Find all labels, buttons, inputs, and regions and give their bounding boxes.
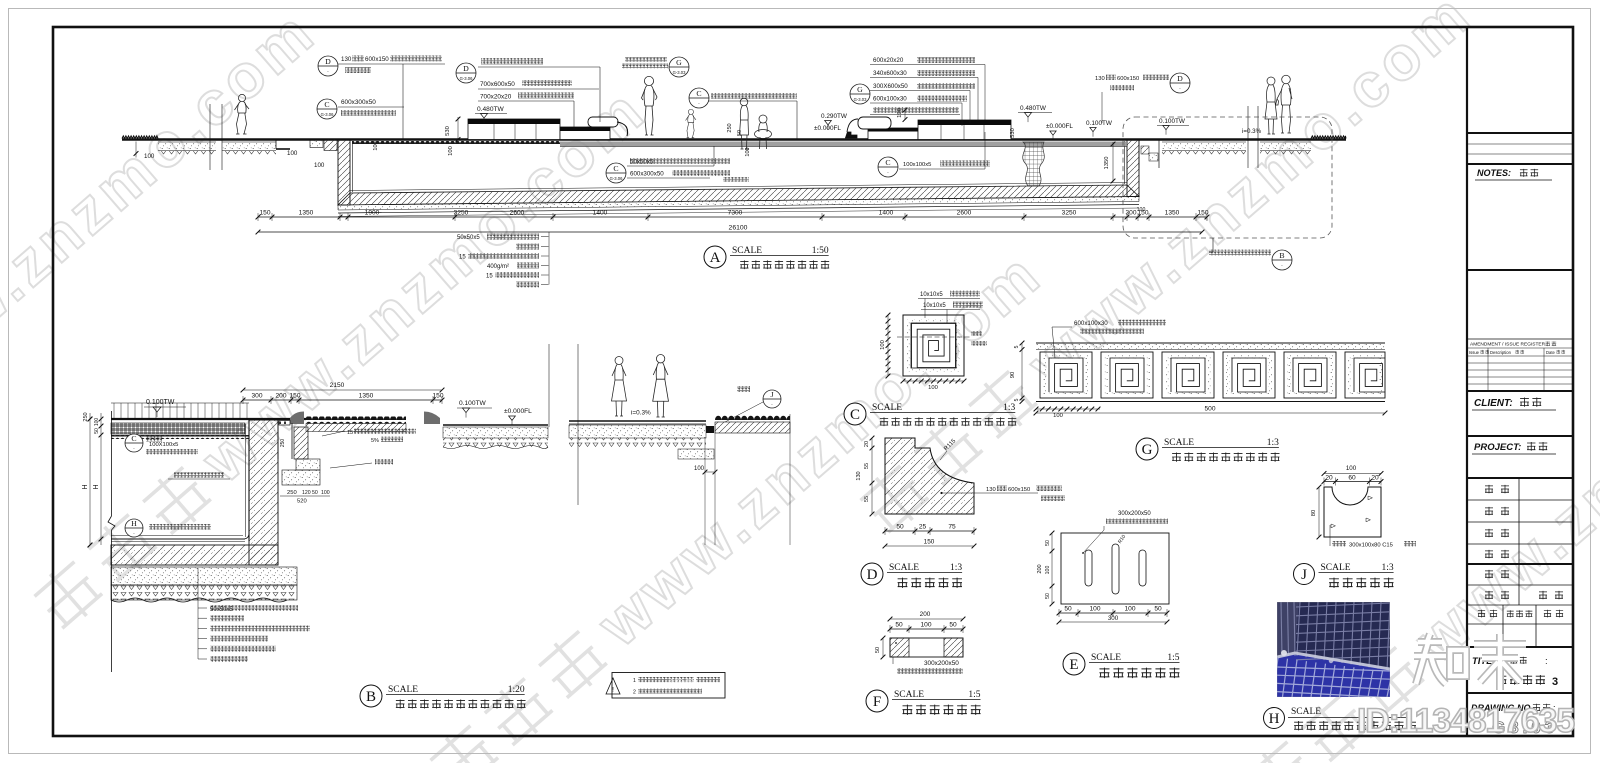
svg-text:100: 100 (1346, 465, 1357, 472)
svg-text:H: H (93, 484, 100, 489)
svg-text:50: 50 (896, 524, 904, 531)
svg-text:3250: 3250 (1062, 210, 1077, 217)
svg-text:15: 15 (486, 274, 493, 280)
svg-text:1:50: 1:50 (812, 246, 829, 256)
svg-text:100: 100 (920, 622, 931, 629)
svg-text:200: 200 (920, 611, 931, 618)
svg-text:0.100TW: 0.100TW (146, 399, 175, 406)
svg-text:H: H (1269, 711, 1280, 727)
svg-text:80: 80 (1311, 510, 1317, 516)
svg-text:1350: 1350 (1165, 210, 1180, 217)
svg-text:700x20x20: 700x20x20 (480, 94, 512, 101)
svg-text:C: C (131, 434, 136, 443)
svg-text:2150: 2150 (330, 382, 345, 389)
svg-text:200: 200 (1037, 564, 1043, 573)
svg-text:150: 150 (259, 210, 270, 217)
svg-text:ID:1134817635: ID:1134817635 (1357, 702, 1574, 740)
svg-text:C: C (613, 164, 618, 173)
svg-text:600x150: 600x150 (1008, 487, 1030, 493)
svg-text:130: 130 (1095, 76, 1105, 82)
svg-text:250: 250 (280, 439, 286, 448)
svg-text:250: 250 (83, 412, 89, 421)
svg-text:100: 100 (880, 340, 886, 350)
svg-text:300: 300 (1108, 615, 1119, 622)
svg-text:0.480TW: 0.480TW (1020, 105, 1047, 112)
svg-text:2600: 2600 (957, 210, 972, 217)
svg-text:Date: Date (1546, 350, 1556, 355)
svg-text:130: 130 (986, 487, 996, 493)
svg-text:±0.000FL: ±0.000FL (814, 125, 841, 132)
svg-text:3250: 3250 (454, 210, 469, 217)
svg-text:SCALE: SCALE (1091, 653, 1121, 663)
svg-text:250: 250 (727, 123, 733, 132)
svg-text:SCALE: SCALE (872, 403, 902, 413)
svg-text:600x100x30: 600x100x30 (1074, 320, 1108, 327)
svg-text:26100: 26100 (729, 225, 748, 232)
svg-text:600x300x50: 600x300x50 (341, 99, 376, 106)
svg-text:90: 90 (1010, 372, 1016, 378)
svg-text:0.100TW: 0.100TW (1086, 120, 1113, 127)
svg-text:100: 100 (314, 162, 325, 169)
svg-text:340x600x30: 340x600x30 (873, 70, 907, 77)
svg-text:1400: 1400 (879, 210, 894, 217)
svg-text:1:5: 1:5 (968, 690, 980, 700)
svg-text:1900: 1900 (365, 210, 380, 217)
svg-text:100: 100 (1045, 566, 1051, 575)
svg-text:1:3: 1:3 (1381, 563, 1393, 573)
svg-text:20: 20 (864, 441, 870, 447)
svg-text:0.480TW: 0.480TW (477, 106, 505, 113)
svg-text:1:3: 1:3 (950, 563, 962, 573)
svg-text:100: 100 (144, 153, 155, 160)
svg-text:1350: 1350 (359, 393, 374, 400)
svg-text:50x50x5: 50x50x5 (457, 235, 480, 241)
svg-text:C: C (696, 89, 701, 98)
svg-text:130: 130 (856, 471, 862, 480)
svg-text:700x600x50: 700x600x50 (480, 81, 515, 88)
svg-text:530: 530 (1010, 128, 1016, 138)
svg-text:D: D (463, 64, 469, 73)
svg-text:300x200x50: 300x200x50 (1118, 511, 1151, 517)
svg-text:100: 100 (94, 418, 100, 427)
svg-text:G-3.03: G-3.03 (673, 70, 686, 75)
svg-text:1350: 1350 (299, 210, 314, 217)
svg-text:1:3: 1:3 (1267, 438, 1279, 448)
svg-text:100: 100 (1053, 413, 1063, 419)
svg-text:3: 3 (1552, 676, 1558, 688)
svg-text:20: 20 (1325, 475, 1333, 482)
svg-text:1:20: 1:20 (508, 685, 525, 695)
svg-text:530: 530 (445, 126, 451, 136)
svg-text:G-3.06: G-3.06 (610, 176, 623, 181)
svg-text:2600: 2600 (510, 210, 525, 217)
svg-text:100: 100 (745, 147, 751, 156)
svg-text:25: 25 (919, 524, 927, 531)
svg-text::: : (1545, 656, 1548, 667)
svg-text:100: 100 (1124, 606, 1135, 613)
svg-text:5: 5 (1014, 398, 1020, 401)
svg-text:50: 50 (1064, 606, 1072, 613)
svg-text:5%: 5% (371, 438, 379, 444)
svg-text:400g/m²: 400g/m² (487, 264, 509, 270)
svg-text:B: B (366, 689, 376, 705)
svg-text:0.100TW: 0.100TW (1159, 118, 1186, 125)
svg-text:±0.000FL: ±0.000FL (504, 408, 532, 415)
svg-text:F: F (873, 694, 881, 710)
svg-text:G: G (857, 85, 863, 94)
svg-text:50x50x5: 50x50x5 (630, 159, 654, 166)
svg-text:G-3.06: G-3.06 (321, 112, 334, 117)
svg-text:50: 50 (949, 622, 957, 629)
svg-text:100: 100 (1137, 207, 1146, 213)
svg-text:600x100x30: 600x100x30 (873, 96, 907, 103)
svg-text:100: 100 (448, 146, 454, 156)
svg-text:CLIENT:: CLIENT: (1474, 398, 1513, 409)
svg-text:Issue: Issue (1469, 350, 1480, 355)
svg-text:J: J (770, 390, 773, 399)
svg-text:J: J (1301, 567, 1307, 583)
svg-text:1350: 1350 (1104, 157, 1110, 170)
svg-text:E: E (1069, 657, 1078, 673)
svg-text:300: 300 (1125, 210, 1136, 217)
svg-text:SCALE: SCALE (889, 563, 919, 573)
svg-text:1400: 1400 (593, 210, 608, 217)
svg-text:±0.000FL: ±0.000FL (1046, 123, 1073, 130)
svg-text:75: 75 (948, 524, 956, 531)
svg-text:10x10x5: 10x10x5 (920, 292, 943, 298)
svg-text:0.290TW: 0.290TW (821, 113, 848, 120)
svg-text:G-3.06: G-3.06 (460, 76, 473, 81)
svg-text:200: 200 (275, 393, 286, 400)
svg-text:300X600x50: 300X600x50 (873, 83, 908, 90)
svg-text:55: 55 (864, 496, 870, 502)
svg-text:H: H (82, 484, 89, 489)
svg-text:100: 100 (928, 385, 938, 391)
svg-text:150: 150 (1197, 210, 1208, 217)
svg-text:SCALE: SCALE (1291, 707, 1321, 717)
svg-text:SCALE: SCALE (1321, 563, 1351, 573)
svg-text:150: 150 (924, 539, 935, 546)
svg-text:Description: Description (1490, 350, 1512, 355)
svg-text:60: 60 (1348, 475, 1356, 482)
svg-text:500: 500 (1204, 406, 1215, 413)
svg-text:B: B (1279, 251, 1284, 260)
svg-text:SCALE: SCALE (1164, 438, 1194, 448)
svg-text:50: 50 (312, 490, 318, 496)
svg-text:1: 1 (633, 678, 636, 684)
svg-text:G-3.03: G-3.03 (854, 97, 867, 102)
svg-text:C: C (850, 407, 860, 423)
svg-text:0.100TW: 0.100TW (459, 400, 487, 407)
svg-text:SCALE: SCALE (894, 690, 924, 700)
svg-text:10x10x5: 10x10x5 (923, 303, 946, 309)
svg-text:300x100x80 C15: 300x100x80 C15 (1349, 543, 1393, 549)
svg-text:300: 300 (251, 393, 262, 400)
svg-text:D: D (1177, 74, 1183, 83)
svg-text:7300: 7300 (728, 210, 743, 217)
svg-text:100: 100 (694, 466, 705, 472)
svg-text:100: 100 (1089, 606, 1100, 613)
svg-text:50: 50 (1045, 593, 1051, 599)
svg-text:2: 2 (633, 690, 636, 696)
svg-text:D: D (325, 57, 331, 66)
svg-text:50: 50 (1154, 606, 1162, 613)
svg-text:5: 5 (1014, 345, 1020, 348)
svg-text:100X100x5: 100X100x5 (149, 442, 178, 448)
svg-text:SCALE: SCALE (388, 685, 418, 695)
svg-text:50: 50 (875, 647, 881, 653)
svg-text:600x150: 600x150 (365, 56, 389, 63)
svg-text:15: 15 (459, 255, 466, 261)
svg-text:50x50x5: 50x50x5 (210, 607, 233, 613)
svg-text:120: 120 (302, 490, 311, 496)
svg-text:50: 50 (1045, 540, 1051, 546)
svg-text:C: C (885, 158, 890, 167)
svg-text:NOTES:: NOTES: (1477, 168, 1511, 178)
svg-text:PROJECT:: PROJECT: (1474, 442, 1521, 453)
svg-text:150: 150 (289, 393, 300, 400)
svg-text:D: D (867, 567, 878, 583)
svg-text:100x100x5: 100x100x5 (903, 162, 931, 168)
svg-text:SCALE: SCALE (732, 246, 762, 256)
svg-text:600x20x20: 600x20x20 (873, 57, 904, 64)
svg-text:300x200x50: 300x200x50 (924, 660, 959, 667)
svg-text:50: 50 (737, 130, 743, 136)
svg-text:G: G (676, 58, 682, 67)
svg-text:i=0.3%: i=0.3% (631, 410, 651, 417)
svg-text:20: 20 (1371, 475, 1379, 482)
svg-text:250: 250 (287, 490, 297, 496)
svg-text:600x300x50: 600x300x50 (630, 171, 664, 178)
svg-text:A: A (710, 250, 721, 266)
svg-text:1:5: 1:5 (1167, 653, 1179, 663)
svg-text:AMENDMENT / ISSUE REGISTER: AMENDMENT / ISSUE REGISTER (1470, 342, 1546, 348)
svg-text:i=0.3%: i=0.3% (1242, 128, 1262, 135)
svg-text:50: 50 (94, 428, 100, 434)
svg-text:H: H (131, 519, 137, 528)
svg-text:520: 520 (297, 499, 307, 505)
svg-text:G: G (1142, 442, 1153, 458)
svg-text:150: 150 (432, 393, 443, 400)
svg-text:100: 100 (321, 490, 330, 496)
svg-text:100: 100 (287, 150, 298, 157)
svg-text:50: 50 (895, 622, 903, 629)
svg-text:130: 130 (341, 56, 352, 63)
svg-text:55: 55 (864, 463, 870, 469)
svg-text:C: C (324, 100, 329, 109)
svg-text:600x150: 600x150 (1117, 76, 1139, 82)
svg-text:!: ! (612, 687, 614, 694)
svg-text:1:3: 1:3 (1003, 403, 1015, 413)
svg-text:15: 15 (347, 430, 353, 436)
